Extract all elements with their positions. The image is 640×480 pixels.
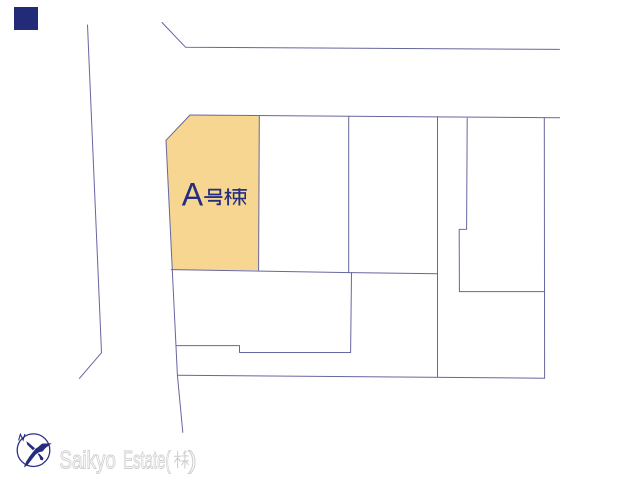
svg-text:): ) [188,447,196,475]
svg-text:Estate(: Estate( [123,447,171,475]
svg-text:Saikyo: Saikyo [59,447,116,475]
svg-text:A: A [182,177,204,213]
